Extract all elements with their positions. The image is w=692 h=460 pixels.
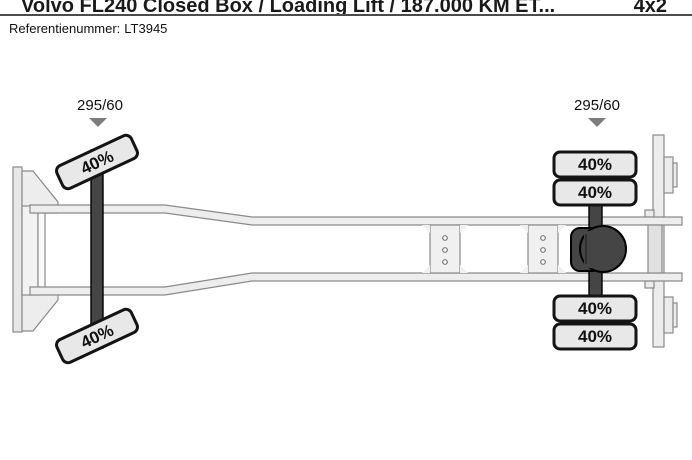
drivetrain-label: 4x2: [634, 0, 667, 16]
front-bumper: [13, 167, 22, 332]
rear-left-outer-tire: 40%: [554, 152, 636, 177]
front-tire-size-label: 295/60: [77, 97, 123, 114]
page: { "header": { "title": "Volvo FL240 Clos…: [0, 0, 692, 460]
rear-left-inner-tire: 40%: [554, 180, 636, 205]
title-bar: Volvo FL240 Closed Box / Loading Lift / …: [0, 0, 692, 16]
bolt-hole: [443, 260, 448, 265]
rear-tire-size-callout: 295/60: [574, 97, 620, 127]
bolt-hole: [541, 248, 546, 253]
reference-value: LT3945: [124, 21, 167, 36]
frame-rail-top: [30, 205, 682, 225]
vehicle-title: Volvo FL240 Closed Box / Loading Lift / …: [21, 0, 555, 16]
frame-rail-bottom: [30, 273, 682, 295]
arrow-down-icon: [588, 118, 606, 127]
rear-lamp-bracket-top-strip: [673, 163, 677, 187]
chassis-diagram: 40% 40% 40% 40% 40% 40%: [0, 0, 692, 460]
bolt-hole: [541, 236, 546, 241]
bolt-hole: [443, 236, 448, 241]
rear-crossmember: [648, 225, 662, 273]
crossmember-2: [520, 225, 566, 273]
rear-step-bracket-top: [645, 210, 654, 217]
front-crossmember-outer: [22, 206, 38, 295]
front-axle-beam: [91, 150, 103, 348]
rear-right-inner-tire: 40%: [554, 296, 636, 321]
rear-lamp-bracket-bottom-strip: [673, 303, 677, 327]
tread-label: 40%: [578, 183, 612, 202]
reference-label: Referentienummer:: [9, 21, 120, 36]
tread-label: 40%: [578, 155, 612, 174]
rear-step-bracket-bottom: [645, 281, 654, 288]
front-axle: 40% 40%: [55, 133, 140, 364]
reference-row: Referentienummer:LT3945: [0, 16, 692, 36]
differential: [571, 226, 626, 272]
tread-label: 40%: [578, 299, 612, 318]
arrow-down-icon: [89, 118, 107, 127]
rear-tire-size-label: 295/60: [574, 97, 620, 114]
front-tire-size-callout: 295/60: [77, 97, 123, 127]
crossmember-1: [422, 225, 468, 273]
page-header: Volvo FL240 Closed Box / Loading Lift / …: [0, 0, 692, 36]
rear-lamp-bracket-bottom: [664, 297, 673, 333]
rear-lamp-bracket-top: [664, 157, 673, 193]
bolt-hole: [443, 248, 448, 253]
front-crossmember-inner: [38, 212, 45, 292]
bolt-hole: [541, 260, 546, 265]
rear-axle: 40% 40% 40% 40%: [554, 152, 636, 349]
rear-right-outer-tire: 40%: [554, 324, 636, 349]
tread-label: 40%: [578, 327, 612, 346]
